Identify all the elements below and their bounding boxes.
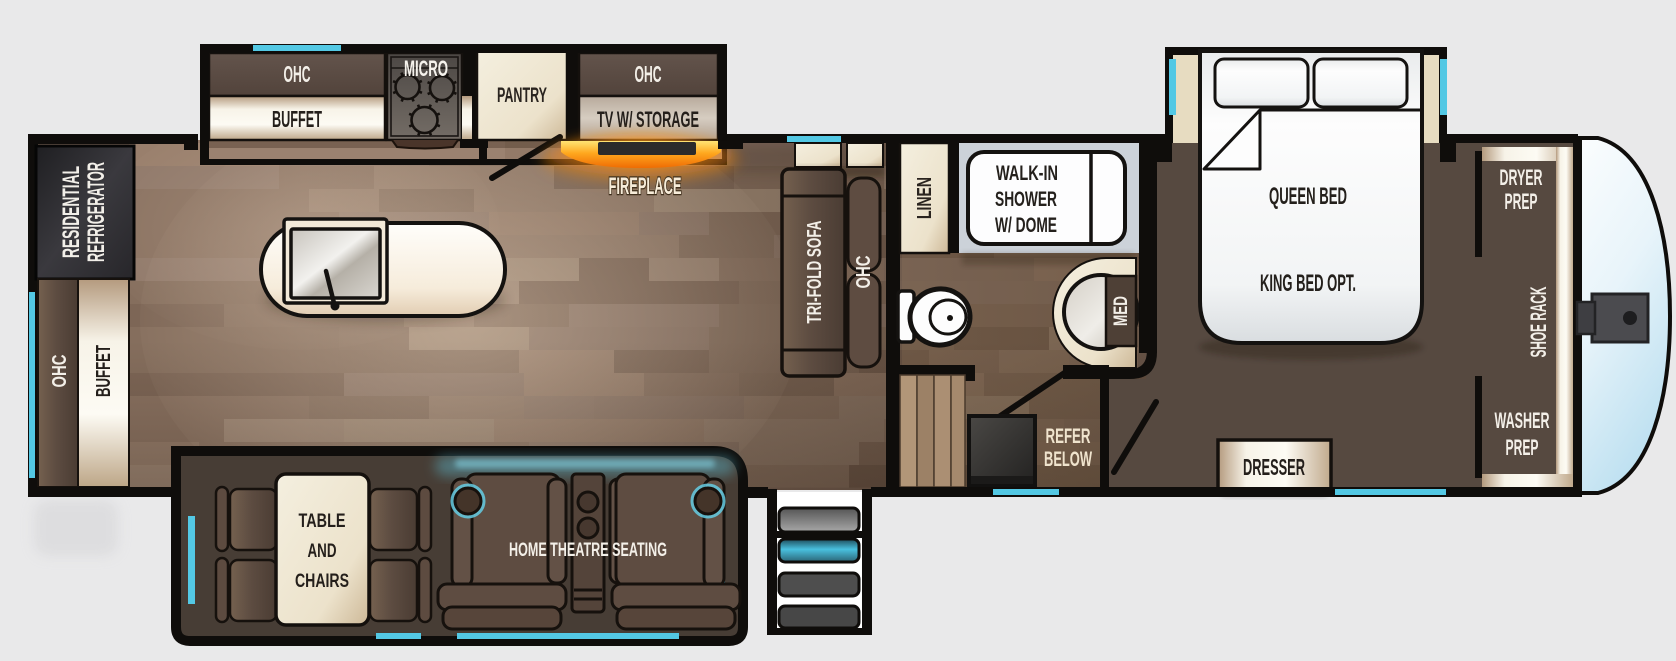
svg-text:OHC: OHC [284,61,311,87]
svg-text:TV W/ STORAGE: TV W/ STORAGE [597,107,699,132]
svg-text:OHC: OHC [853,256,875,289]
svg-text:PREP: PREP [1505,189,1538,214]
svg-text:WALK-IN: WALK-IN [996,162,1058,185]
svg-text:RESIDENTIAL: RESIDENTIAL [58,166,85,258]
svg-text:WASHER: WASHER [1495,408,1550,433]
svg-text:TABLE: TABLE [299,511,346,532]
svg-text:PREP: PREP [1506,435,1539,460]
svg-text:TRI-FOLD SOFA: TRI-FOLD SOFA [804,221,826,324]
svg-text:LINEN: LINEN [914,177,936,219]
svg-text:HOME THEATRE SEATING: HOME THEATRE SEATING [509,540,667,561]
svg-text:DRESSER: DRESSER [1243,454,1305,480]
svg-text:AND: AND [308,541,337,562]
svg-text:MICRO: MICRO [404,56,448,81]
svg-text:QUEEN BED: QUEEN BED [1269,183,1347,210]
svg-text:KING BED OPT.: KING BED OPT. [1260,270,1356,297]
svg-text:W/ DOME: W/ DOME [995,214,1057,237]
svg-text:SHOE RACK: SHOE RACK [1526,286,1551,357]
svg-text:BELOW: BELOW [1044,448,1092,471]
svg-text:FIREPLACE: FIREPLACE [609,173,682,200]
svg-text:DRYER: DRYER [1500,165,1543,190]
svg-text:SHOWER: SHOWER [995,188,1057,211]
svg-text:PANTRY: PANTRY [497,84,547,107]
svg-text:OHC: OHC [635,61,662,87]
svg-text:BUFFET: BUFFET [93,345,115,397]
svg-text:REFRIGERATOR: REFRIGERATOR [83,162,110,262]
svg-text:CHAIRS: CHAIRS [295,571,349,592]
svg-text:REFER: REFER [1046,425,1091,448]
svg-text:OHC: OHC [49,355,71,388]
svg-text:BUFFET: BUFFET [272,106,322,132]
svg-text:MED: MED [1111,296,1132,326]
